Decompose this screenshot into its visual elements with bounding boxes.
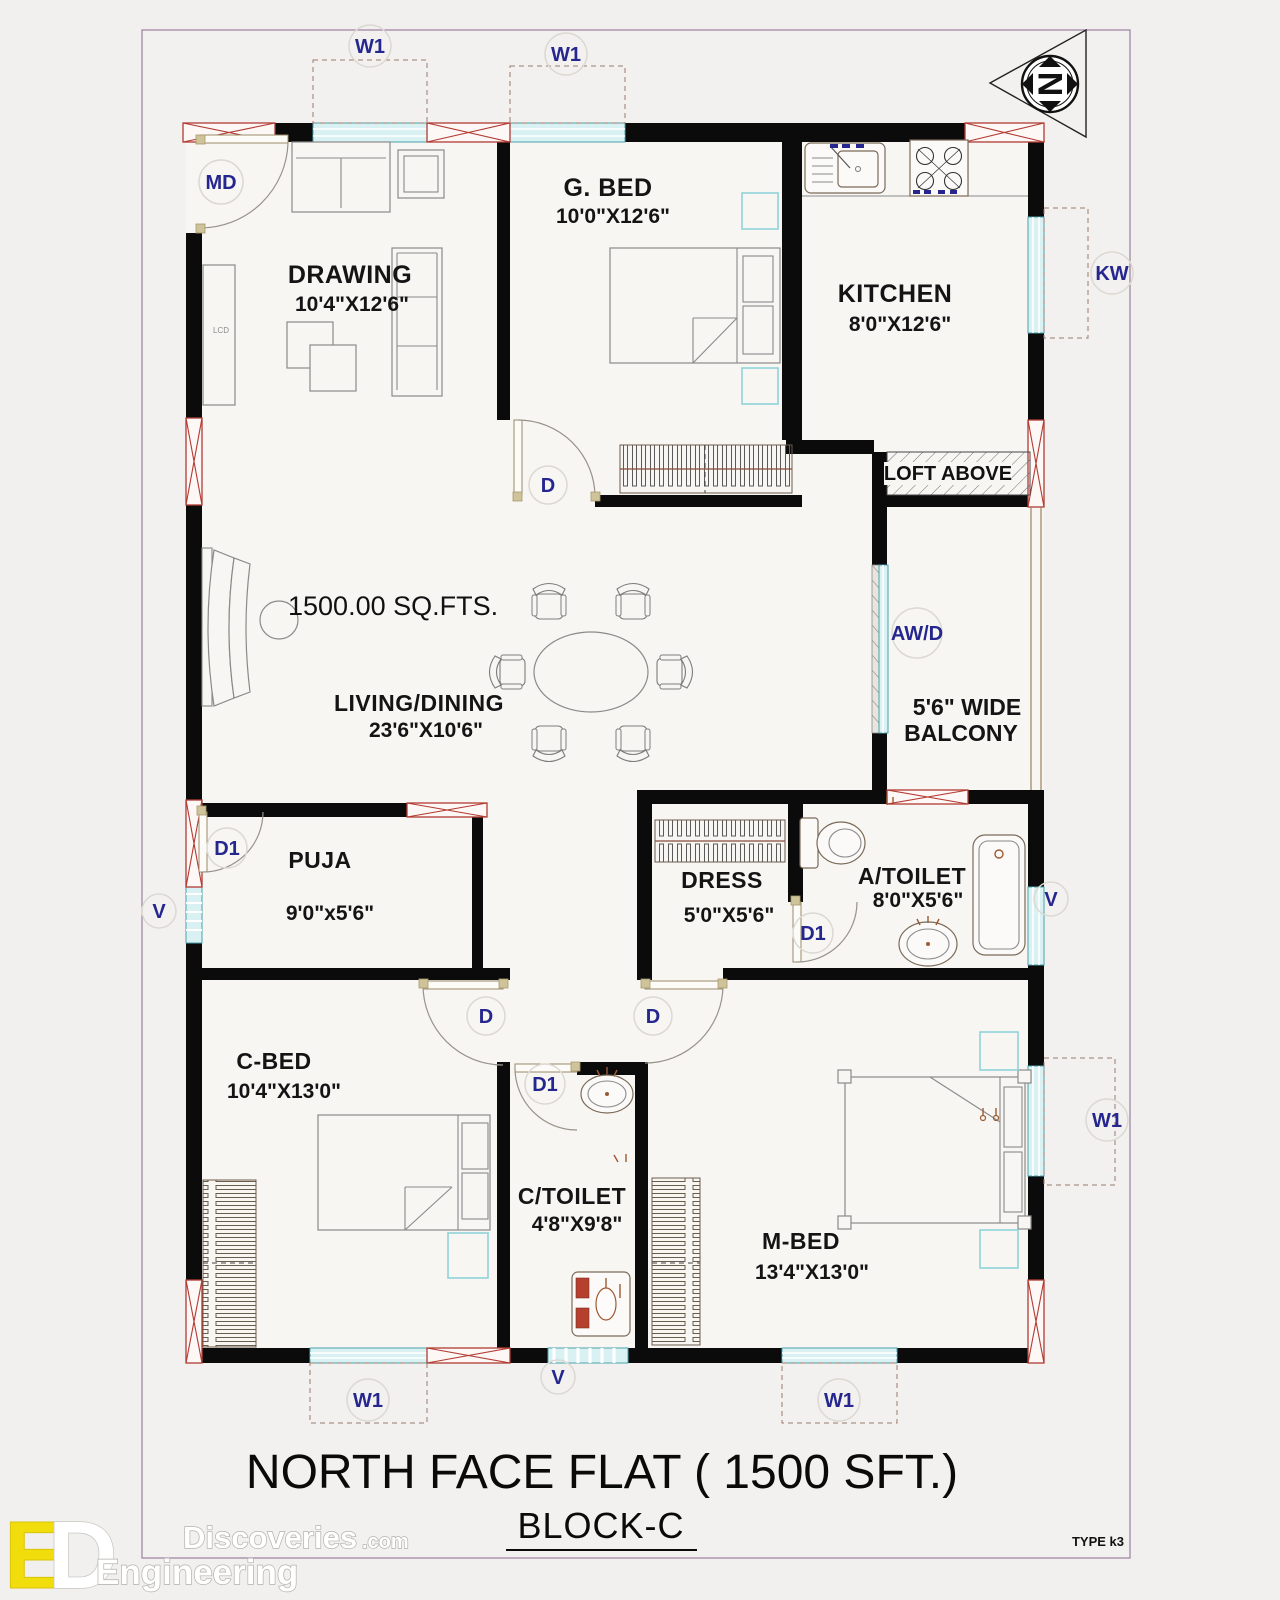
tv-label: LCD — [213, 326, 229, 335]
label-d1-puja: D1 — [214, 838, 240, 860]
label-puja: PUJA — [288, 847, 351, 873]
label-w1-right: W1 — [1092, 1110, 1122, 1132]
kitchen-sink — [805, 143, 885, 193]
shower-unit — [572, 1272, 630, 1336]
dim-gbed: 10'0"X12'6" — [556, 205, 670, 228]
window-w1-bottom-left — [310, 1348, 427, 1363]
block-title: BLOCK-C — [517, 1505, 684, 1546]
dim-kitchen: 8'0"X12'6" — [849, 313, 951, 336]
window-awd-balcony — [872, 565, 888, 733]
label-gbed: G. BED — [563, 174, 652, 202]
label-mbed: M-BED — [762, 1228, 840, 1254]
floor-plan-drawing: N — [0, 0, 1280, 1600]
label-ctoilet: C/TOILET — [518, 1183, 626, 1209]
label-main-door: MD — [205, 172, 236, 194]
label-w1-bottom-left: W1 — [353, 1390, 383, 1412]
label-living: LIVING/DINING — [334, 690, 504, 716]
dim-living: 23'6"X10'6" — [369, 719, 483, 742]
label-kw: KW — [1095, 263, 1128, 285]
kitchen-stove — [910, 140, 968, 196]
label-w1-top-left: W1 — [355, 36, 385, 58]
dim-cbed: 10'4"X13'0" — [227, 1080, 341, 1103]
dim-dress: 5'0"X5'6" — [684, 904, 775, 927]
window-kw — [1028, 217, 1044, 333]
label-v-right: V — [1044, 889, 1058, 911]
label-cbed: C-BED — [236, 1048, 311, 1074]
brand-name: Discoveries — [183, 1520, 357, 1555]
guest-wardrobe — [620, 445, 792, 493]
window-w1-bottom-right — [782, 1348, 897, 1363]
label-d1-atoilet: D1 — [800, 923, 826, 945]
brand-sub: Engineering — [96, 1553, 298, 1592]
loft-label: LOFT ABOVE — [884, 463, 1012, 485]
dress-wardrobe — [655, 820, 785, 862]
ventilator-right — [1028, 887, 1044, 965]
sheet-title: NORTH FACE FLAT ( 1500 SFT.) — [246, 1446, 958, 1499]
label-atoilet: A/TOILET — [858, 863, 966, 889]
label-balcony-1: 5'6" WIDE — [913, 694, 1021, 720]
tv-cabinet: LCD — [203, 265, 235, 405]
type-code: TYPE k3 — [1072, 1534, 1124, 1549]
label-w1-top-right: W1 — [551, 44, 581, 66]
dim-puja: 9'0"x5'6" — [286, 902, 374, 925]
label-kitchen: KITCHEN — [838, 280, 953, 308]
brand-suffix: .com — [362, 1531, 409, 1553]
label-door-gbed: D — [541, 475, 555, 497]
label-dress: DRESS — [681, 867, 763, 893]
label-drawing: DRAWING — [288, 261, 412, 289]
label-awd: AW/D — [891, 623, 943, 645]
loft-above: LOFT ABOVE — [884, 452, 1030, 495]
window-w1-top-left — [313, 123, 427, 142]
dim-atoilet: 8'0"X5'6" — [873, 889, 964, 912]
label-w1-bottom-right: W1 — [824, 1390, 854, 1412]
compass-letter: N — [1032, 72, 1070, 97]
dim-ctoilet: 4'8"X9'8" — [532, 1213, 623, 1236]
label-door-mbed: D — [646, 1006, 660, 1028]
window-w1-top-right — [510, 123, 625, 142]
label-v-left: V — [152, 901, 166, 923]
ventilator-left — [186, 887, 202, 943]
floor-plan-sheet: N — [0, 0, 1280, 1600]
dim-mbed: 13'4"X13'0" — [755, 1261, 869, 1284]
label-v-bottom: V — [551, 1367, 565, 1389]
label-d1-ctoilet: D1 — [532, 1074, 558, 1096]
dim-drawing: 10'4"X12'6" — [295, 293, 409, 316]
label-balcony-2: BALCONY — [904, 720, 1018, 746]
label-door-cbed: D — [479, 1006, 493, 1028]
label-area: 1500.00 SQ.FTS. — [288, 591, 498, 621]
